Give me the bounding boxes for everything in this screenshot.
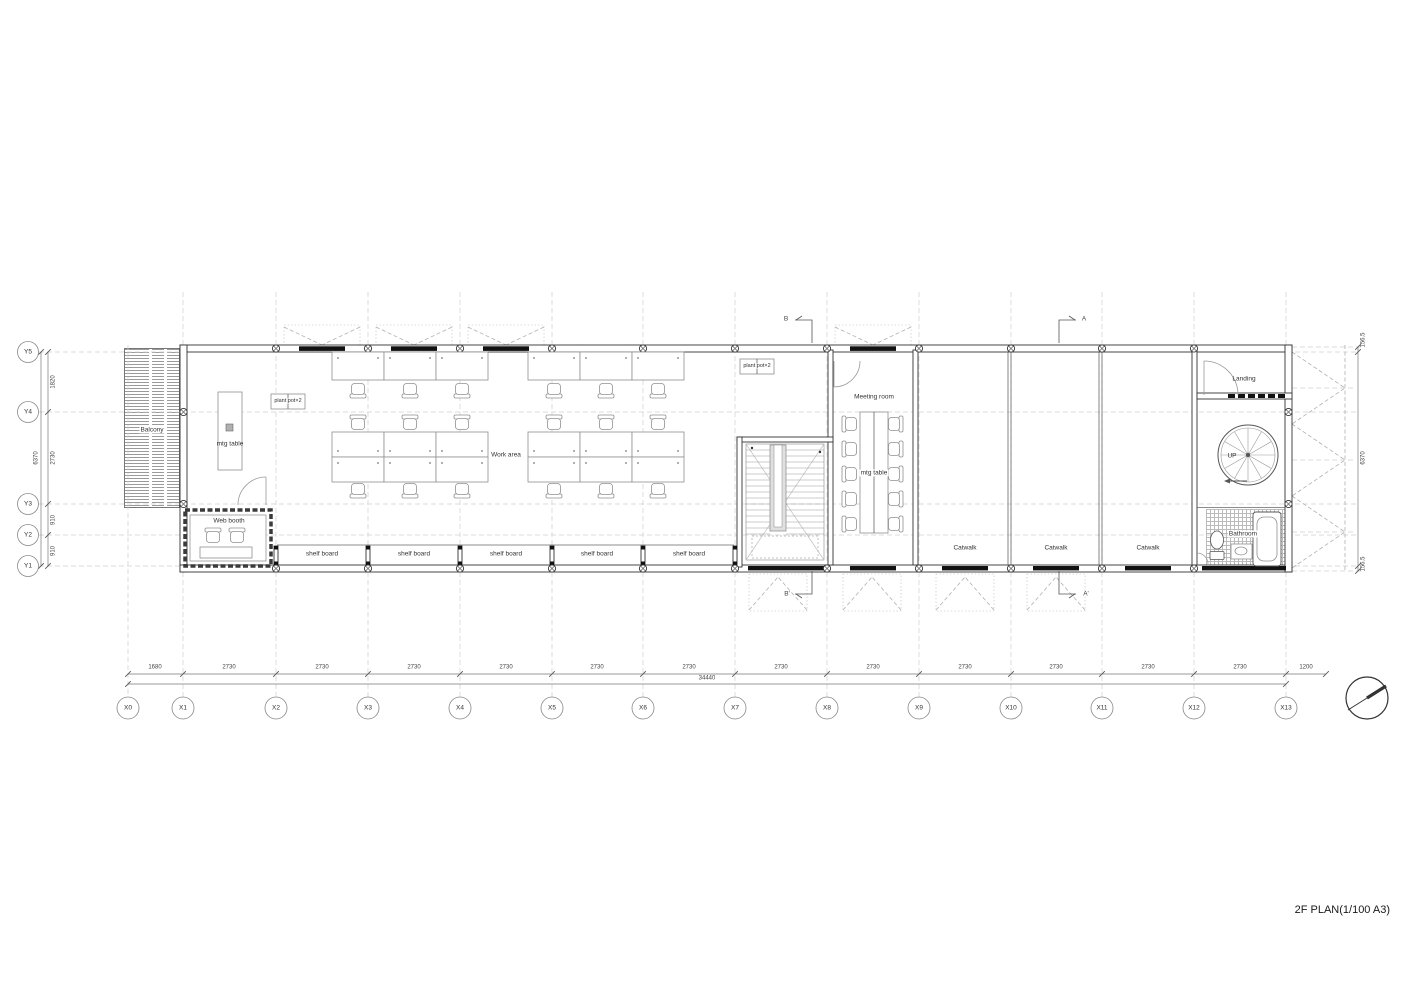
dim-right-1: 6370 (1361, 451, 1368, 464)
chair (889, 441, 904, 457)
dim-bottom-7: 2730 (774, 665, 787, 672)
chair (842, 466, 857, 482)
north-arrow (1346, 677, 1388, 719)
dim-left-seg-2: 910 (51, 514, 58, 524)
main-staircase (746, 444, 824, 560)
chair (546, 415, 562, 430)
section-marker-b: B (784, 315, 788, 322)
room-label-balcony: Balcony (139, 426, 164, 433)
dim-bottom-4: 2730 (499, 665, 512, 672)
chair (454, 484, 470, 499)
label-catwalk-2: Catwalk (1044, 544, 1067, 551)
grid-label-x2: X2 (272, 704, 280, 711)
dim-left-seg-1: 2730 (51, 451, 58, 464)
section-marker-b-prime: B' (784, 590, 790, 597)
dim-bottom-total: 34440 (699, 676, 716, 683)
dim-bottom-11: 2730 (1141, 665, 1154, 672)
grid-lines (39, 292, 1364, 697)
label-mtg-table-meeting: mtg table (860, 469, 889, 476)
chair (650, 384, 666, 399)
dim-bottom-1: 2730 (222, 665, 235, 672)
label-catwalk-3: Catwalk (1136, 544, 1159, 551)
grid-label-x3: X3 (364, 704, 372, 711)
chair (889, 516, 904, 532)
chair (205, 528, 221, 543)
chair (598, 484, 614, 499)
room-label-web-booth: Web booth (213, 517, 244, 524)
floor-plan-canvas: Balcony Web booth Work area Meeting room… (0, 0, 1415, 1000)
grid-label-x7: X7 (731, 704, 739, 711)
grid-label-x9: X9 (915, 704, 923, 711)
chair (842, 491, 857, 507)
room-label-landing: Landing (1232, 375, 1255, 382)
label-up-spiral-stair: UP (1227, 452, 1236, 459)
dim-bottom-6: 2730 (682, 665, 695, 672)
dim-bottom-3: 2730 (407, 665, 420, 672)
room-label-bathroom: Bathroom (1228, 530, 1258, 537)
chair (598, 415, 614, 430)
chair (650, 415, 666, 430)
chair (454, 384, 470, 399)
room-label-work-area: Work area (491, 451, 521, 458)
grid-label-y1: Y1 (24, 562, 32, 569)
dim-bottom-8: 2730 (866, 665, 879, 672)
grid-label-x12: X12 (1188, 704, 1200, 711)
label-shelf-board-3: shelf board (490, 550, 522, 557)
label-plant-pot-2: plant pot×2 (743, 363, 770, 369)
chair (546, 484, 562, 499)
chair (402, 384, 418, 399)
chair (842, 441, 857, 457)
grid-label-y3: Y3 (24, 500, 32, 507)
chair (454, 415, 470, 430)
label-shelf-board-5: shelf board (673, 550, 705, 557)
chair (889, 416, 904, 432)
chair (598, 384, 614, 399)
dim-bottom-12: 2730 (1233, 665, 1246, 672)
dim-right-2: 156.5 (1361, 556, 1368, 571)
dim-left-total: 6370 (34, 451, 41, 464)
grid-label-x11: X11 (1096, 704, 1107, 711)
chair (842, 516, 857, 532)
dim-bottom-0: 1680 (148, 665, 161, 672)
label-plant-pot-1: plant pot×2 (274, 398, 301, 404)
room-label-meeting-room: Meeting room (854, 393, 894, 400)
chair (842, 416, 857, 432)
grid-label-x1: X1 (179, 704, 187, 711)
dim-left-seg-3: 910 (51, 545, 58, 555)
grid-label-x0: X0 (124, 704, 132, 711)
grid-label-x8: X8 (823, 704, 831, 711)
chair (350, 484, 366, 499)
label-shelf-board-4: shelf board (581, 550, 613, 557)
dim-bottom-13: 1200 (1299, 665, 1312, 672)
chair (350, 384, 366, 399)
dim-bottom-5: 2730 (590, 665, 603, 672)
grid-label-y2: Y2 (24, 531, 32, 538)
chair (229, 528, 245, 543)
chair (546, 384, 562, 399)
dim-bottom-2: 2730 (315, 665, 328, 672)
label-catwalk-1: Catwalk (953, 544, 976, 551)
dim-left-seg-0: 1820 (51, 375, 58, 388)
floor-plan-drawing (0, 0, 1415, 1000)
dim-bottom-9: 2730 (958, 665, 971, 672)
chair (889, 466, 904, 482)
dim-bottom-10: 2730 (1049, 665, 1062, 672)
chair (350, 415, 366, 430)
section-marker-a-prime: A' (1083, 590, 1089, 597)
markers (795, 316, 1076, 598)
label-shelf-board-1: shelf board (306, 550, 338, 557)
chair (402, 484, 418, 499)
grid-label-x5: X5 (548, 704, 556, 711)
label-shelf-board-2: shelf board (398, 550, 430, 557)
grid-label-x10: X10 (1005, 704, 1017, 711)
chair (402, 415, 418, 430)
chair (889, 491, 904, 507)
dim-right-0: 156.5 (1361, 332, 1368, 347)
label-mtg-table-left: mtg table (217, 440, 244, 447)
grid-label-y4: Y4 (24, 408, 32, 415)
drawing-title: 2F PLAN(1/100 A3) (1295, 904, 1390, 916)
grid-label-y5: Y5 (24, 348, 32, 355)
chair (650, 484, 666, 499)
section-marker-a: A (1082, 315, 1086, 322)
grid-label-x4: X4 (456, 704, 464, 711)
grid-label-x6: X6 (639, 704, 647, 711)
grid-label-x13: X13 (1280, 704, 1292, 711)
